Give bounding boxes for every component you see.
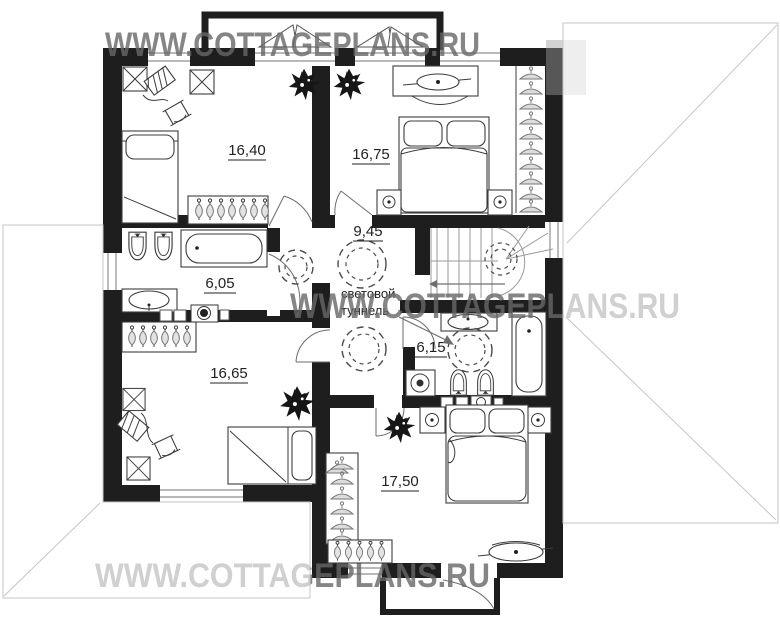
- plant-icon: [331, 67, 366, 102]
- single-bed: [228, 427, 316, 484]
- light-tunnel-circle: [279, 250, 313, 284]
- chair-icon: [152, 435, 181, 460]
- watermark-top: WWW.COTTAGEPLANS.RU: [105, 26, 480, 64]
- wall-stair-stub: [415, 215, 430, 275]
- toilet-icon: [478, 370, 494, 395]
- toilet-icon: [129, 232, 146, 260]
- washing-machine: [406, 370, 435, 396]
- double-bed: [446, 405, 528, 503]
- double-bed: [399, 117, 489, 213]
- plant-icon: [278, 384, 317, 423]
- plant-icon: [381, 410, 416, 445]
- closet-hangers-column: [326, 453, 358, 544]
- cabinet-icon: [123, 388, 145, 410]
- window-left: [103, 253, 122, 290]
- desk-icon: [144, 66, 175, 95]
- doorway-bathroom-left: [267, 252, 280, 316]
- cabinet-icon: [190, 70, 214, 94]
- cable-line: [143, 95, 168, 101]
- window-right: [545, 222, 563, 258]
- wardrobe-hangers: [122, 322, 196, 352]
- bathtub: [181, 230, 267, 267]
- area-label-bedroom-bottom-left: 16,65: [210, 365, 248, 382]
- room-bathroom-right: [403, 312, 546, 408]
- area-label-bedroom-top-left: 16,40: [228, 142, 266, 159]
- room-bedroom-bottom-left: [117, 322, 316, 484]
- wall-divider-upper: [312, 48, 330, 215]
- light-tunnel-circle: [338, 240, 386, 288]
- cabinet-icon: [123, 67, 147, 91]
- nightstand: [526, 407, 551, 433]
- toilet-icon: [155, 232, 172, 260]
- wardrobe-hangers-column: [516, 66, 542, 213]
- doorway-bedroom-top-left: [268, 215, 312, 228]
- wardrobe-hangers: [188, 196, 268, 224]
- area-label-bedroom-top-right: 16,75: [352, 146, 390, 163]
- room-bedroom-top-left: [122, 66, 322, 226]
- roof-plane-left: [3, 225, 310, 598]
- cabinet-icon: [127, 457, 150, 480]
- area-label-bathroom-left: 6,05: [205, 275, 234, 292]
- single-bed: [122, 131, 178, 223]
- doorway-bedroom-bottom-right: [374, 395, 402, 408]
- nightstand: [420, 407, 445, 433]
- sink-counter: [122, 289, 177, 312]
- chair-icon: [163, 100, 192, 126]
- dressing-table: [393, 66, 478, 105]
- room-bedroom-top-right: [331, 66, 542, 215]
- room-bedroom-bottom-right: [326, 405, 553, 563]
- floor-plan-page: 16,40 16,75 9,45 6,05 6,15 16,65 17,50 с…: [0, 0, 780, 620]
- door-arc: [335, 191, 372, 215]
- window-bottom-left: [160, 485, 243, 502]
- light-tunnel-circle: [485, 243, 517, 275]
- toilet-icon: [451, 370, 467, 395]
- area-label-hall: 9,45: [353, 223, 382, 240]
- nightstand: [488, 190, 512, 215]
- nightstand: [377, 190, 401, 215]
- floor-plan-canvas: 16,40 16,75 9,45 6,05 6,15 16,65 17,50 с…: [0, 0, 780, 620]
- area-label-bedroom-bottom-right: 17,50: [381, 473, 419, 490]
- roof-plane-right: [563, 23, 778, 523]
- area-label-bathroom-right: 6,15: [416, 339, 445, 356]
